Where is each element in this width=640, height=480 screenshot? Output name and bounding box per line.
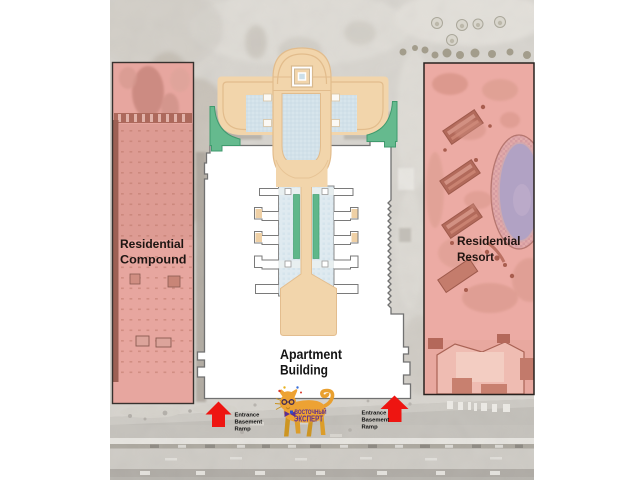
svg-text:Ramp: Ramp: [362, 425, 379, 431]
svg-text:Resort: Resort: [457, 252, 494, 264]
svg-text:ЭКСПЕРТ: ЭКСПЕРТ: [294, 415, 323, 424]
svg-text:Residential: Residential: [457, 236, 521, 248]
svg-text:Entrance: Entrance: [235, 413, 261, 419]
svg-text:Residential: Residential: [120, 239, 184, 251]
svg-text:Basement: Basement: [362, 418, 390, 424]
svg-text:Basement: Basement: [235, 420, 263, 426]
svg-text:Building: Building: [280, 363, 328, 378]
svg-text:Ramp: Ramp: [235, 427, 252, 433]
svg-text:Compound: Compound: [120, 255, 187, 267]
svg-text:Apartment: Apartment: [280, 347, 342, 362]
svg-text:Entrance: Entrance: [362, 411, 388, 417]
